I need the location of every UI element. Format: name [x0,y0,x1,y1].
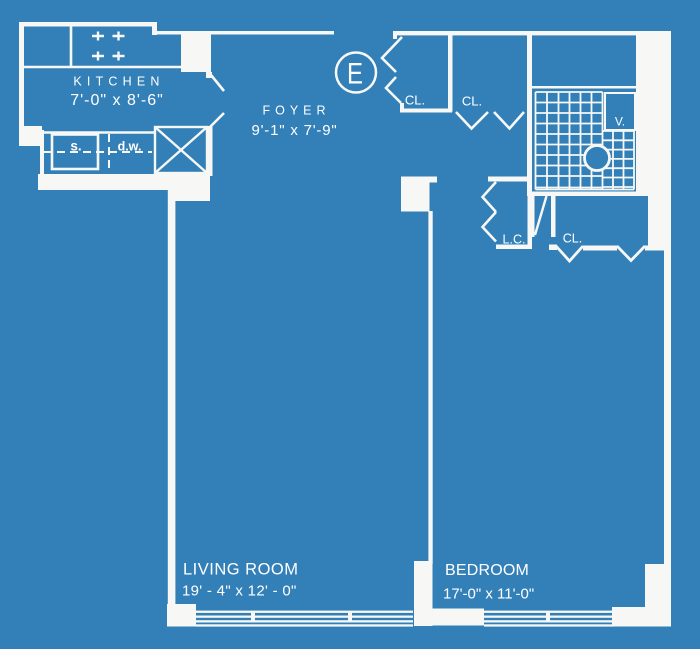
svg-text:19' - 4" x 12' - 0": 19' - 4" x 12' - 0" [182,583,297,600]
svg-text:9'-1" x 7'-9": 9'-1" x 7'-9" [252,122,338,139]
svg-text:L.C.: L.C. [503,233,526,247]
svg-text:FOYER: FOYER [262,104,330,118]
svg-text:E: E [347,58,363,91]
svg-text:LIVING ROOM: LIVING ROOM [183,561,299,579]
svg-text:BEDROOM: BEDROOM [445,562,529,579]
svg-text:V.: V. [615,115,625,129]
svg-text:KITCHEN: KITCHEN [73,75,164,89]
svg-text:17'-0" x 11'-0": 17'-0" x 11'-0" [443,586,534,603]
svg-text:CL.: CL. [462,94,482,109]
svg-text:CL.: CL. [563,232,582,246]
svg-text:7'-0" x 8'-6": 7'-0" x 8'-6" [70,92,164,109]
svg-text:CL.: CL. [405,93,425,108]
